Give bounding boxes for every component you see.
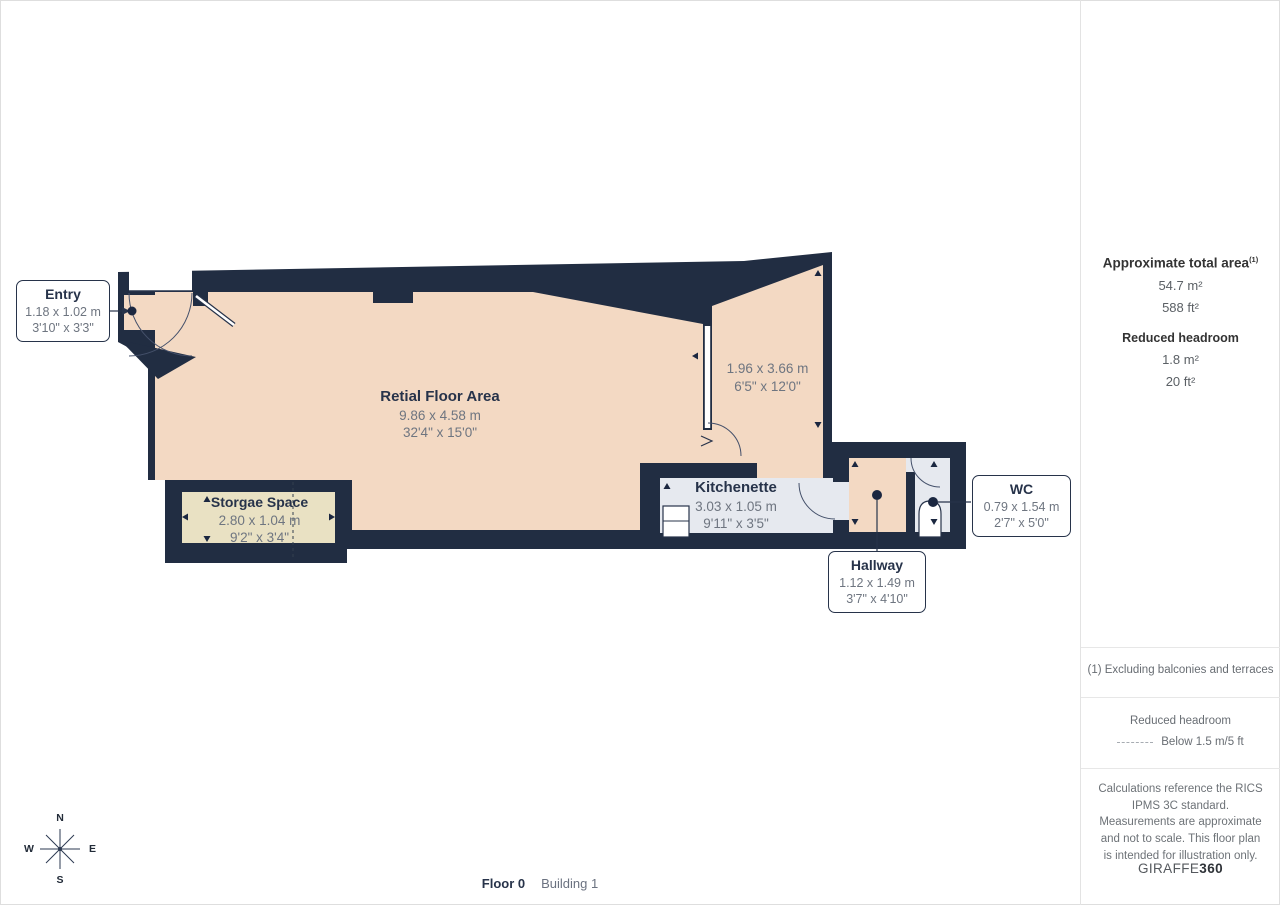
room-dim-imperial: 2'7" x 5'0": [976, 515, 1067, 531]
legend-text: Below 1.5 m/5 ft: [1161, 736, 1243, 748]
building-label: Building 1: [541, 876, 598, 891]
reduced-headroom-heading: Reduced headroom: [1081, 331, 1280, 345]
compass-south-label: S: [56, 874, 63, 886]
entry-label-box: Entry 1.18 x 1.02 m 3'10" x 3'3": [16, 280, 110, 342]
dashed-line-sample: [1117, 742, 1153, 743]
footnote-mark: (1): [1249, 255, 1258, 264]
compass-east-label: E: [89, 843, 96, 855]
floorplan-page: Retial Floor Area 9.86 x 4.58 m 32'4" x …: [0, 0, 1280, 905]
room-dim-imperial: 3'10" x 3'3": [20, 320, 106, 336]
compass-west-label: W: [24, 843, 34, 855]
total-area-heading: Approximate total area(1): [1081, 255, 1280, 271]
legend-row: Below 1.5 m/5 ft: [1081, 736, 1280, 748]
divider: [1081, 768, 1280, 769]
footnote-text: (1) Excluding balconies and terraces: [1081, 664, 1280, 676]
divider: [1081, 697, 1280, 698]
info-sidebar: Approximate total area(1) 54.7 m² 588 ft…: [1080, 0, 1280, 905]
divider: [1081, 647, 1280, 648]
hallway-label-box: Hallway 1.12 x 1.49 m 3'7" x 4'10": [828, 551, 926, 613]
room-name: Hallway: [832, 557, 922, 575]
room-dim-metric: 0.79 x 1.54 m: [976, 499, 1067, 515]
entry-marker-dot: [128, 307, 137, 316]
total-area-m2: 54.7 m²: [1081, 278, 1280, 293]
disclaimer-text: Calculations reference the RICS IPMS 3C …: [1081, 781, 1280, 864]
area-summary: Approximate total area(1) 54.7 m² 588 ft…: [1081, 255, 1280, 389]
wc-marker-dot: [928, 497, 938, 507]
room-name: WC: [976, 481, 1067, 499]
room-dim-imperial: 3'7" x 4'10": [832, 591, 922, 607]
plan-footer: Floor 0Building 1: [0, 876, 1080, 891]
entry-opening: [129, 266, 192, 291]
floor-plan-drawing: [0, 0, 1080, 905]
toilet-fixture: [919, 501, 941, 537]
reduced-headroom-ft2: 20 ft²: [1081, 374, 1280, 389]
legend-title: Reduced headroom: [1081, 715, 1280, 727]
compass-north-label: N: [56, 812, 64, 824]
brand-logo: GIRAFFE360: [1081, 861, 1280, 876]
hallway-marker-dot: [872, 490, 882, 500]
room-dim-metric: 1.12 x 1.49 m: [832, 575, 922, 591]
wc-label-box: WC 0.79 x 1.54 m 2'7" x 5'0": [972, 475, 1071, 537]
floor-label: Floor 0: [482, 876, 525, 891]
compass-rose: N S W E: [22, 812, 98, 886]
glazed-partition: [705, 326, 710, 428]
room-dim-metric: 1.18 x 1.02 m: [20, 304, 106, 320]
total-area-ft2: 588 ft²: [1081, 300, 1280, 315]
room-name: Entry: [20, 286, 106, 304]
reduced-headroom-m2: 1.8 m²: [1081, 352, 1280, 367]
compass-star-icon: [36, 825, 84, 873]
